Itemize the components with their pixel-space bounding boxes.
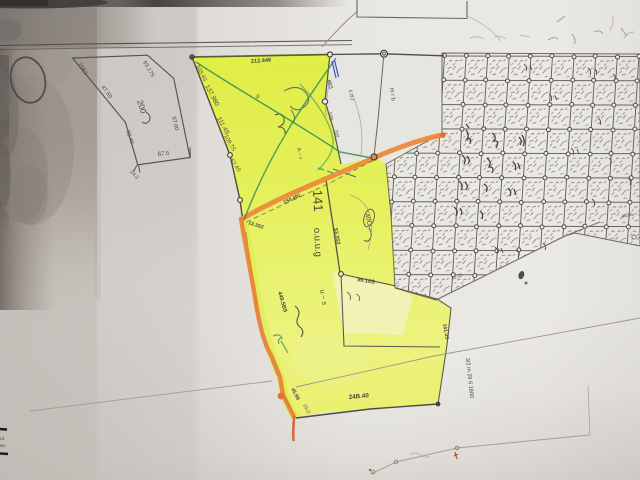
- svg-text:ut.: ut.: [0, 436, 5, 442]
- svg-text:sn.: sn.: [0, 444, 6, 449]
- svg-text:141: 141: [310, 189, 326, 211]
- svg-text:o.u.u.g: o.u.u.g: [311, 228, 324, 258]
- svg-text:67.5: 67.5: [158, 151, 171, 158]
